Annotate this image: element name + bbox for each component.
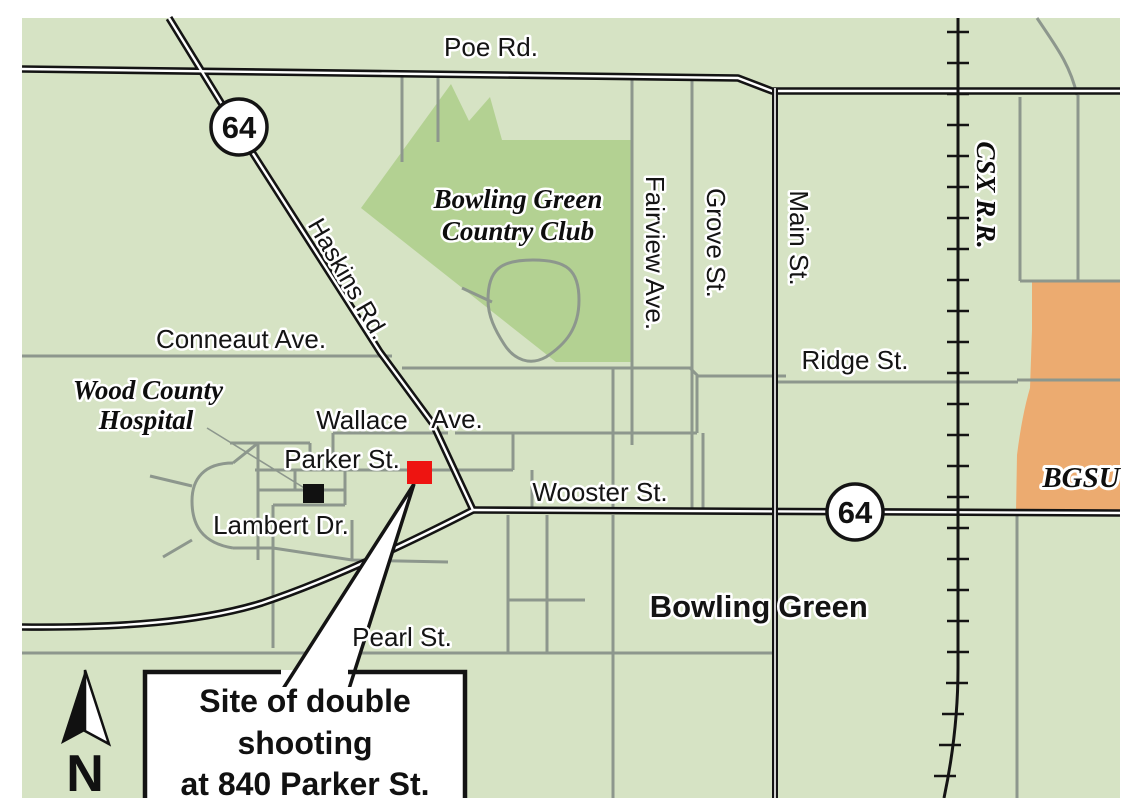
poe-rd-label: Poe Rd. bbox=[444, 32, 538, 62]
route-shield-north: 64 bbox=[211, 99, 267, 155]
conneaut-ave-label: Conneaut Ave. bbox=[156, 324, 326, 354]
hospital-marker bbox=[303, 484, 324, 503]
csx-railroad-label: CSX R.R. bbox=[971, 141, 1001, 248]
city-label-line1: Bowling bbox=[650, 589, 771, 624]
shooting-site-marker bbox=[407, 461, 432, 484]
route-shield-east-number: 64 bbox=[838, 495, 873, 530]
city-label-line2: Green bbox=[778, 589, 868, 624]
hospital-label-line2: Hospital bbox=[98, 405, 194, 435]
callout-line1: Site of double bbox=[199, 683, 411, 719]
hospital-label-line1: Wood County bbox=[73, 375, 224, 405]
parker-st-label: Parker St. bbox=[284, 444, 400, 474]
wooster-st-label: Wooster St. bbox=[532, 477, 667, 507]
country-club-label-line1: Bowling Green bbox=[433, 184, 603, 214]
grove-st-label: Grove St. bbox=[701, 188, 731, 298]
bgsu-label: BGSU bbox=[1041, 462, 1121, 494]
map-figure: Site of double shooting at 840 Parker St… bbox=[0, 0, 1140, 798]
north-arrow-letter: N bbox=[66, 745, 104, 798]
callout-line2: shooting bbox=[237, 725, 372, 761]
pearl-st-label: Pearl St. bbox=[352, 622, 452, 652]
callout-line3: at 840 Parker St. bbox=[180, 766, 429, 798]
wallace-ave-label-west: Wallace bbox=[316, 405, 408, 435]
fairview-ave-label: Fairview Ave. bbox=[640, 176, 670, 330]
lambert-dr-label: Lambert Dr. bbox=[213, 510, 349, 540]
wallace-ave-label-east: Ave. bbox=[431, 404, 483, 434]
locator-map: Site of double shooting at 840 Parker St… bbox=[0, 0, 1140, 798]
route-shield-north-number: 64 bbox=[222, 110, 257, 145]
country-club-label-line2: Country Club bbox=[442, 216, 594, 246]
route-shield-east: 64 bbox=[827, 484, 883, 540]
main-st-label: Main St. bbox=[784, 190, 814, 285]
ridge-st-label: Ridge St. bbox=[802, 345, 909, 375]
